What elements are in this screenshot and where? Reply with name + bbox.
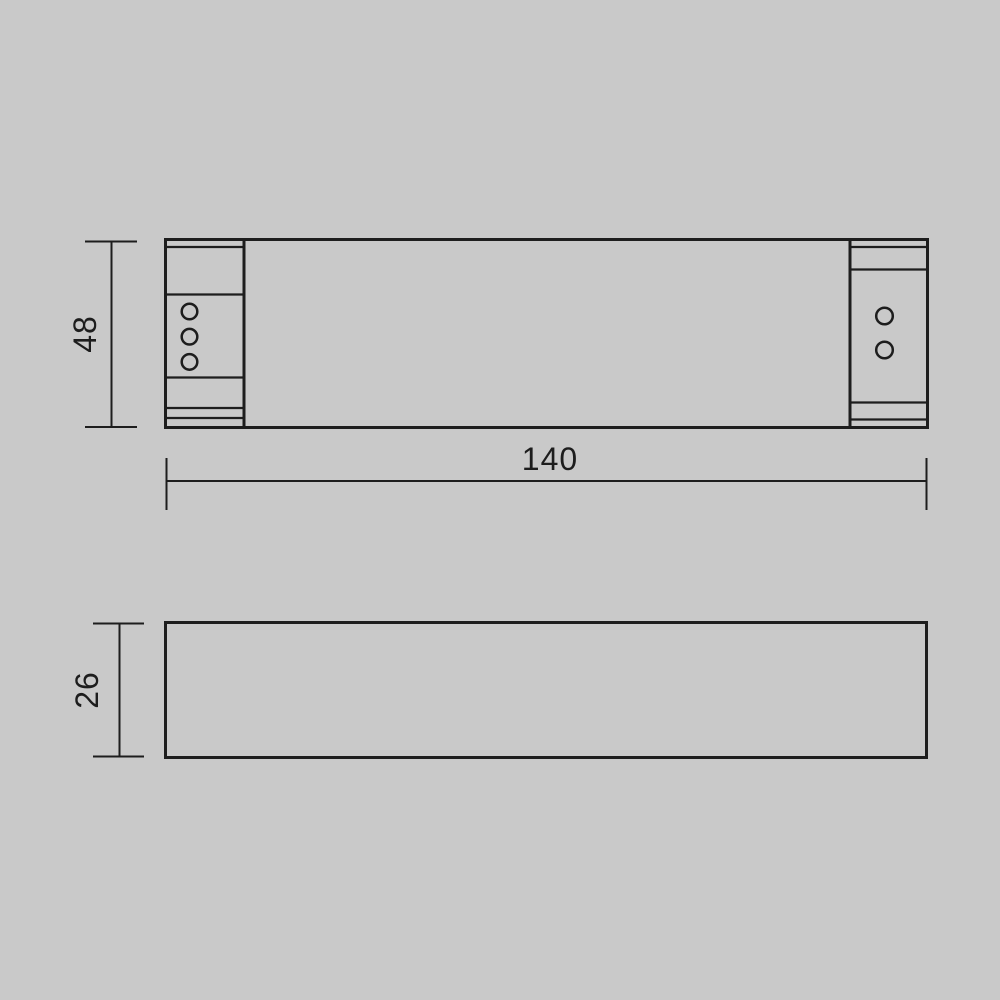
terminal-hole [876,308,893,325]
dimension-label-side-height: 26 [69,671,105,709]
side-view [166,623,927,758]
terminal-hole [182,329,198,345]
dimension-label-height: 48 [67,315,103,353]
technical-dimension-drawing: 48 140 26 [0,0,1000,1000]
top-view [166,240,928,428]
terminal-hole [182,304,198,320]
left-terminal-holes [182,304,198,370]
right-end-cap [851,247,926,420]
dimension-side-height: 26 [69,624,144,757]
dimension-top-height: 48 [67,242,137,428]
right-terminal-holes [876,308,893,359]
dimension-label-width: 140 [522,441,578,477]
drawing-canvas: 48 140 26 [0,0,1000,1000]
left-end-cap [166,247,243,418]
dimension-width: 140 [167,441,927,510]
terminal-hole [182,354,198,370]
enclosure-outline [166,240,928,428]
side-profile-outline [166,623,927,758]
terminal-hole [876,342,893,359]
